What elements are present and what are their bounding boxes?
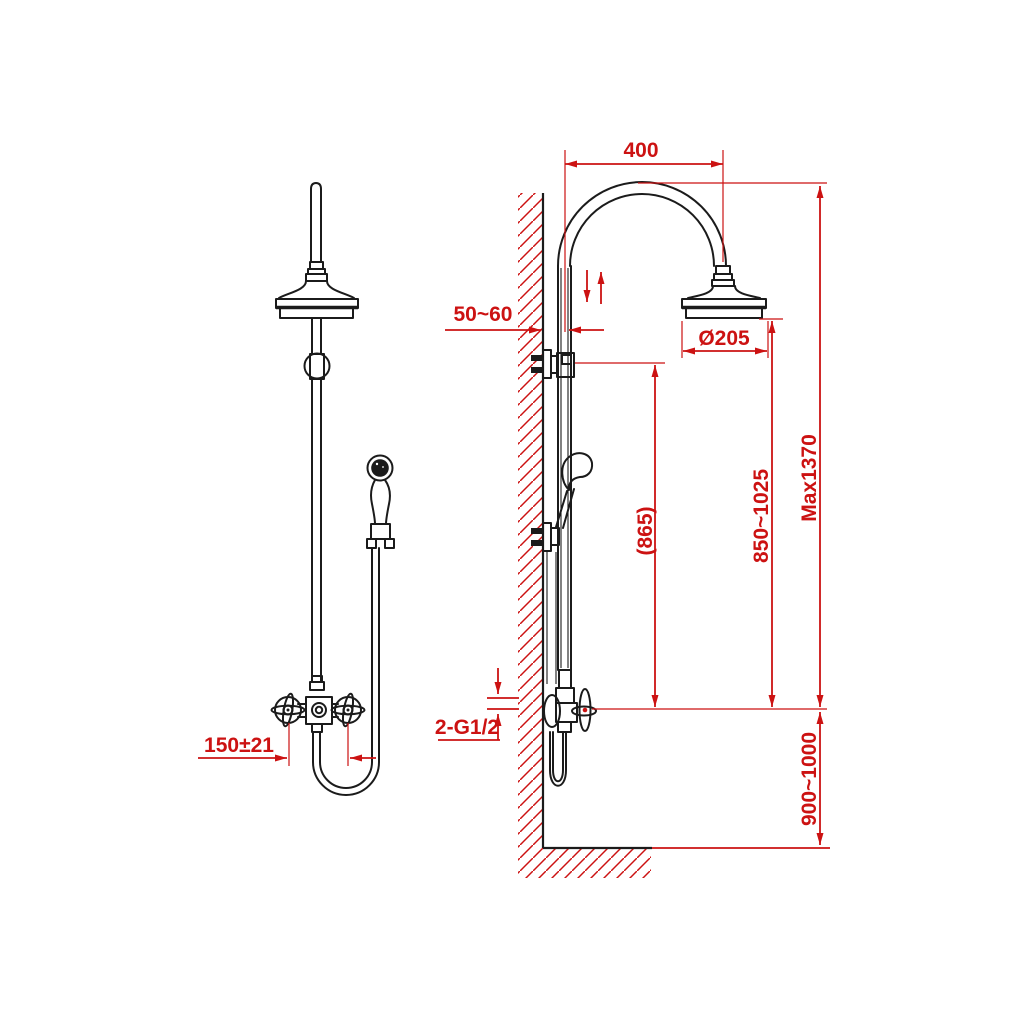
dim-arm-reach: 400 (565, 139, 723, 332)
front-riser-pipe-mid (312, 318, 321, 354)
valve-centerline (583, 708, 827, 713)
front-rain-head-bell (279, 281, 354, 299)
technical-drawing-page: 150±21 (0, 0, 1024, 1024)
height-adjust-arrows (587, 270, 601, 304)
dim-head-diameter: Ø205 (682, 321, 768, 358)
inlet-thread-label: 2-G1/2 (435, 716, 499, 739)
head-to-valve-label: 850~1025 (750, 469, 773, 563)
dim-max-height: Max1370 (798, 186, 821, 707)
valve-to-floor-label: 900~1000 (798, 732, 821, 826)
wall-hatch (518, 193, 543, 878)
arm-reach-label: 400 (623, 139, 658, 162)
side-rain-head (682, 266, 766, 318)
dim-valve-to-floor: 900~1000 (652, 712, 830, 848)
front-head-connector (306, 262, 327, 281)
front-right-cross-handle (332, 693, 365, 727)
front-left-cross-handle (272, 693, 305, 727)
front-hand-shower-holder (371, 524, 390, 539)
dim-bracket-to-valve: (865) (575, 363, 665, 707)
front-mixer-outlet (312, 724, 322, 732)
head-diameter-label: Ø205 (698, 327, 750, 350)
side-gooseneck-arm (558, 182, 726, 266)
shower-installation-diagram: 150±21 (0, 0, 1024, 1024)
dimension-annotations: 400 Max1370 850~1025 (865) 90 (435, 139, 830, 848)
side-stop-valve (544, 670, 596, 732)
front-riser-pipe-lower (312, 379, 321, 682)
front-rain-head-rim (276, 299, 358, 318)
wall-offset-label: 50~60 (454, 303, 513, 326)
dim-inlet-spacing: 150±21 (198, 723, 376, 766)
inlet-spacing-label: 150±21 (204, 734, 274, 757)
front-mixer-valve (298, 676, 338, 732)
side-hose-upper (547, 552, 556, 684)
dim-head-to-valve: 850~1025 (750, 319, 783, 707)
dim-inlet-thread: 2-G1/2 (435, 668, 519, 740)
side-hose-loop (550, 732, 566, 786)
max-height-label: Max1370 (798, 434, 821, 522)
front-riser-pipe-top (311, 183, 321, 262)
bracket-to-valve-label: (865) (634, 506, 657, 555)
front-slider-joint (305, 354, 330, 380)
front-view-drawing: 150±21 (198, 183, 394, 795)
front-hand-shower (367, 456, 394, 549)
floor-hatch (543, 848, 651, 878)
